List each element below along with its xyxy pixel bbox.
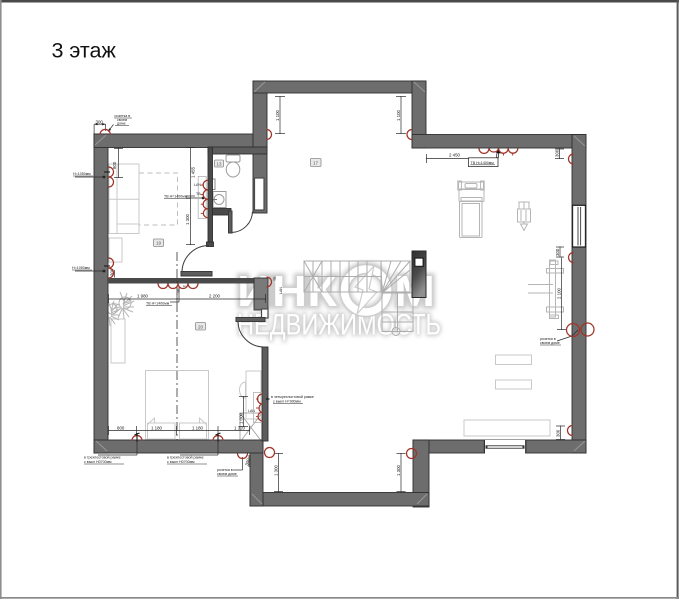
svg-text:в четырехпостовой рамке: в четырехпостовой рамке [271,395,314,399]
svg-text:1 455: 1 455 [191,166,196,178]
svg-text:1 180: 1 180 [151,426,163,431]
svg-text:1 980: 1 980 [137,294,149,299]
svg-text:1 000: 1 000 [239,412,244,424]
svg-text:1 180: 1 180 [192,426,204,431]
svg-text:2 200: 2 200 [209,294,221,299]
svg-text:в трехпостовой рамке: в трехпостовой рамке [167,456,204,460]
svg-text:LAN: LAN [279,287,283,294]
svg-text:1 320: 1 320 [234,426,246,431]
svg-text:20: 20 [198,325,204,330]
svg-text:LAN: LAN [248,409,255,413]
svg-text:в трехпостовой рамке: в трехпостовой рамке [84,456,121,460]
svg-text:1 300: 1 300 [185,213,190,225]
svg-text:ТВ Н=1400мм: ТВ Н=1400мм [471,161,495,165]
svg-text:3: 3 [182,285,186,287]
svg-text:своем доме: своем доме [540,341,560,345]
svg-text:300: 300 [555,149,560,157]
svg-text:с выкл Н0700мм: с выкл Н0700мм [167,460,195,464]
svg-text:800: 800 [117,426,125,431]
svg-text:ТВ Н=1400мм: ТВ Н=1400мм [164,195,188,199]
svg-text:1 100: 1 100 [396,109,401,121]
svg-text:2 100: 2 100 [557,287,562,299]
svg-text:3 этаж: 3 этаж [52,39,117,63]
svg-text:800: 800 [112,161,117,169]
svg-text:с выкл Н=900мм: с выкл Н=900мм [273,400,301,404]
svg-text:LAN: LAN [194,183,201,187]
svg-text:13: 13 [217,162,223,167]
svg-text:1 300: 1 300 [274,464,279,476]
svg-text:Н=1050мм: Н=1050мм [73,172,91,176]
svg-text:Н=1050мм: Н=1050мм [72,266,90,270]
svg-text:ТВ: ТВ [273,276,277,281]
svg-text:300: 300 [96,119,104,124]
svg-text:ТВ Н=1400мм: ТВ Н=1400мм [146,302,170,306]
svg-text:доме: доме [117,122,126,126]
svg-text:300: 300 [556,429,561,437]
svg-text:с выкл Н0700мм: с выкл Н0700мм [84,460,112,464]
svg-text:2 450: 2 450 [449,153,461,158]
svg-text:1 100: 1 100 [275,109,280,121]
svg-text:своем доме: своем доме [217,472,237,476]
svg-text:17: 17 [313,161,319,166]
svg-text:19: 19 [156,241,162,246]
svg-text:300: 300 [555,248,560,256]
svg-text:1 300: 1 300 [396,464,401,476]
